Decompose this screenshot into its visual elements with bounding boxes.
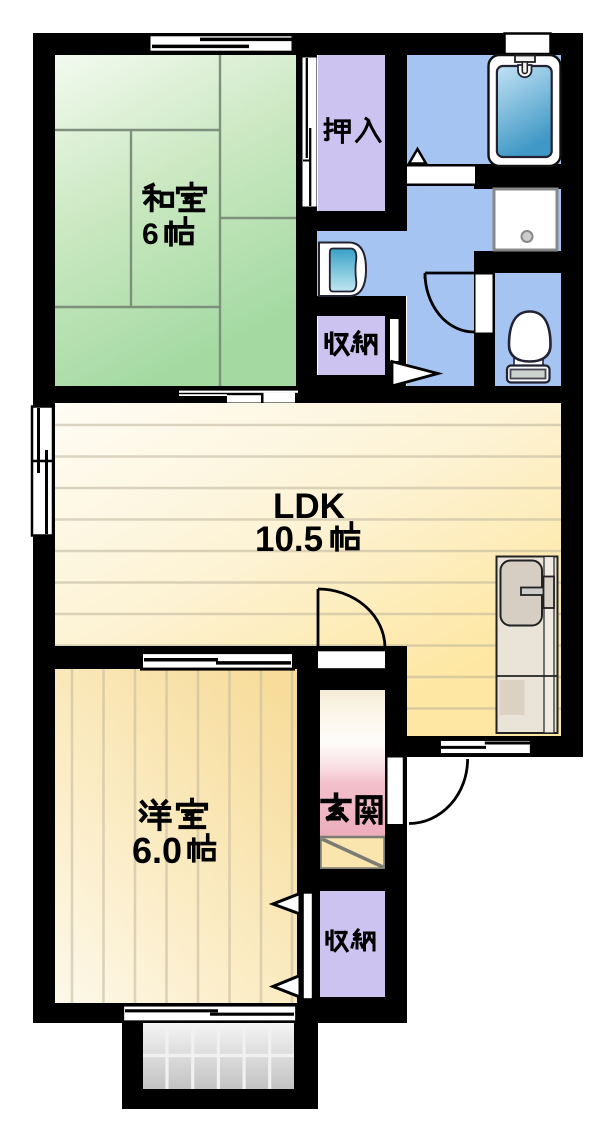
- svg-text:10.5: 10.5: [255, 520, 323, 559]
- svg-text:6.0: 6.0: [132, 830, 182, 871]
- svg-text:6: 6: [142, 218, 159, 251]
